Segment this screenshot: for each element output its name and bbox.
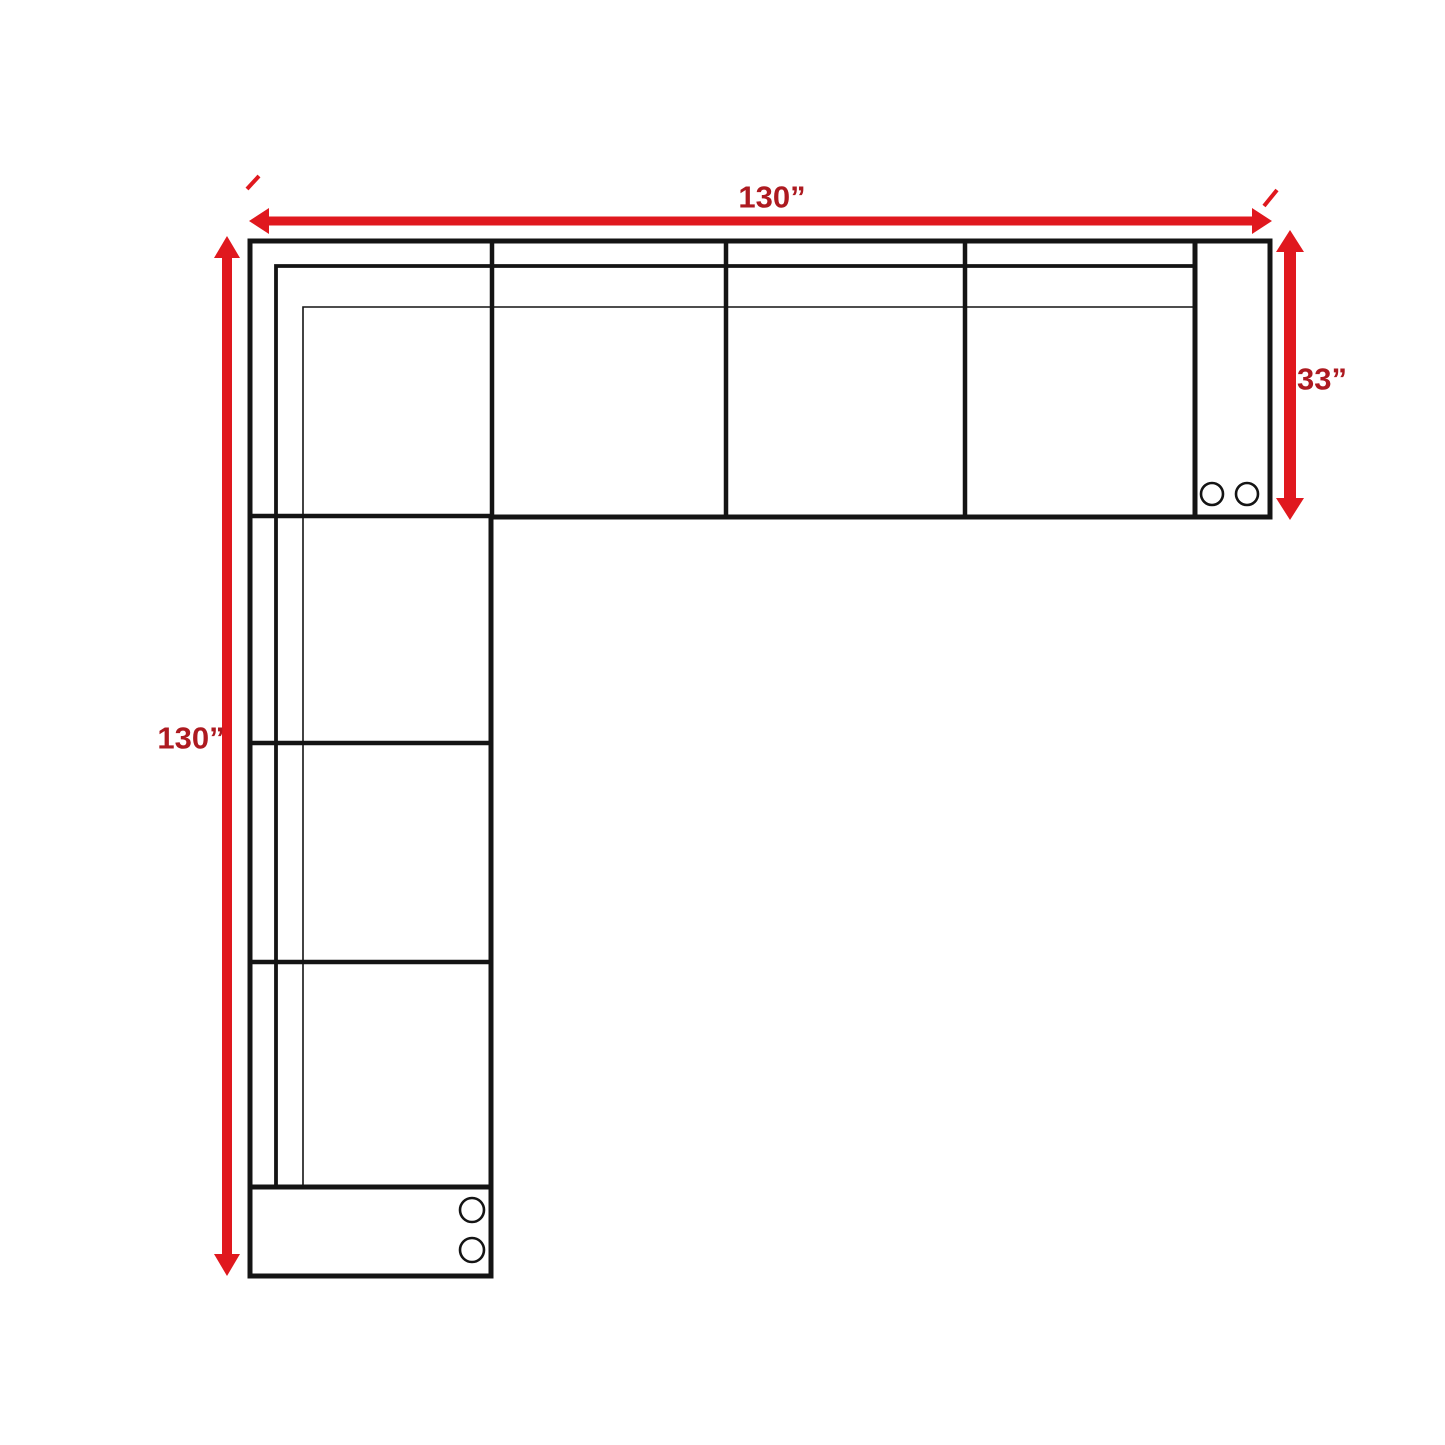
left-dimension-arrow [214, 236, 240, 1276]
cupholder-icon [1201, 483, 1223, 505]
sofa-outline [250, 241, 1270, 1276]
height-dimension-label: 130” [157, 723, 224, 754]
depth-dimension-label: 33” [1297, 364, 1347, 395]
cupholder-icon [460, 1198, 484, 1222]
seat-cushion-front-line [303, 307, 1195, 1187]
cupholder-icon [1236, 483, 1258, 505]
arrow-end-tick [247, 176, 259, 189]
arrow-end-tick [1264, 190, 1277, 206]
width-dimension-label: 130” [738, 182, 805, 213]
diagram-canvas: 130” 130” 33” [0, 0, 1445, 1445]
cupholder-icon [460, 1238, 484, 1262]
backrest-inner-line [276, 266, 1195, 1187]
